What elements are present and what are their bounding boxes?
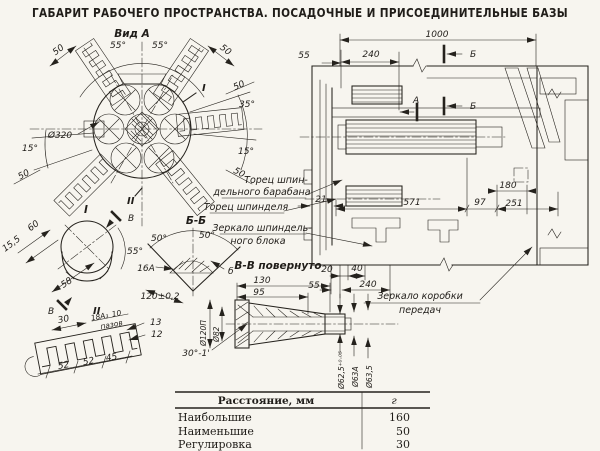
callout-spindle-block-face: Зеркало шпиндель- ного блока bbox=[212, 223, 372, 249]
section-vv-title: В-В повернуто bbox=[234, 260, 321, 272]
angle-15-right: 15° bbox=[238, 147, 254, 157]
dimension-table: Расстояние, мм г Наибольшие 160 Наименьш… bbox=[175, 392, 430, 451]
callout-gearbox-face: Зеркало коробки передач bbox=[364, 245, 534, 316]
section-v-top: В bbox=[128, 214, 134, 224]
table-row: Наименьшие 50 bbox=[178, 425, 410, 438]
fit-16a: 16А bbox=[137, 264, 155, 274]
angle-35: 35° bbox=[239, 100, 255, 110]
dim-52b: 52 bbox=[82, 356, 95, 368]
detail-mark-I: I bbox=[202, 83, 206, 94]
label-spindle-drum-face-1: Торец шпин- bbox=[244, 175, 308, 186]
dim-dia-62-5: Ø62,5⁺⁰·⁰⁵ bbox=[337, 351, 346, 390]
dim-97: 97 bbox=[474, 198, 486, 208]
dim-dia-120p: Ø120П bbox=[199, 320, 208, 347]
label-spindle-block-2: ного блока bbox=[230, 236, 285, 247]
label-spindle-block-1: Зеркало шпиндель- bbox=[212, 223, 312, 234]
table-row-value: 30 bbox=[396, 438, 410, 451]
table-row-label: Наименьшие bbox=[178, 425, 254, 438]
machine-outline bbox=[304, 59, 588, 271]
dim-30: 30 bbox=[57, 314, 70, 326]
page-title: ГАБАРИТ РАБОЧЕГО ПРОСТРАНСТВА. ПОСАДОЧНЫ… bbox=[32, 6, 568, 20]
angle-55-left: 55° bbox=[110, 41, 126, 51]
detail-mark-II: II bbox=[127, 196, 135, 207]
angle-55-detail: 55° bbox=[127, 247, 143, 257]
dim-45: 45 bbox=[105, 352, 118, 364]
dim-95: 95 bbox=[253, 288, 265, 298]
section-a: А bbox=[412, 96, 419, 106]
dim-dia-320: Ø320 bbox=[47, 130, 73, 141]
dim-dia-82: Ø82 bbox=[212, 326, 221, 343]
dim-60: 60 bbox=[26, 219, 41, 234]
table-header-value: г bbox=[391, 395, 397, 407]
ref-b: б bbox=[228, 267, 234, 277]
dim-12: 12 bbox=[151, 330, 163, 340]
dim-240-top: 240 bbox=[362, 50, 379, 60]
angle-15-left: 15° bbox=[22, 144, 38, 154]
dim-50-bottom-left: 50 bbox=[17, 168, 32, 182]
dim-130: 130 bbox=[253, 276, 270, 286]
dim-55-bottom: 55 bbox=[308, 281, 320, 291]
dim-571: 571 bbox=[403, 198, 420, 208]
section-b-mid: Б bbox=[470, 102, 476, 112]
dim-50-top-left: 50 bbox=[51, 43, 66, 58]
dim-13: 13 bbox=[150, 318, 162, 328]
label-spindle-drum-face-2: дельного барабана bbox=[212, 187, 310, 198]
angle-55-right: 55° bbox=[152, 41, 168, 51]
label-gearbox-1: Зеркало коробки bbox=[377, 291, 463, 302]
table-row: Наибольшие 160 bbox=[178, 411, 410, 424]
table-row-value: 160 bbox=[389, 411, 410, 424]
detail-i: I 60 15,5 58 55° В В II bbox=[1, 204, 143, 317]
dim-52a: 52 bbox=[57, 360, 70, 372]
view-a-label: Вид А bbox=[114, 28, 150, 40]
technical-drawing-canvas: ГАБАРИТ РАБОЧЕГО ПРОСТРАНСТВА. ПОСАДОЧНЫ… bbox=[0, 0, 600, 451]
main-view: 1000 55 240 Б Б А 571 97 251 180 bbox=[204, 30, 588, 316]
table-row-value: 50 bbox=[396, 425, 410, 438]
tool-slide bbox=[176, 108, 244, 137]
dim-50-right: 50 bbox=[232, 79, 247, 93]
dim-dia-63a: Ø63А bbox=[351, 366, 360, 388]
label-gearbox-2: передач bbox=[399, 305, 441, 316]
table-row-label: Наибольшие bbox=[178, 411, 252, 424]
section-bb-title: Б-Б bbox=[186, 215, 206, 227]
dim-dia-63-5: Ø63,5 bbox=[365, 365, 374, 389]
dim-251: 251 bbox=[505, 199, 522, 209]
detail-ii: 30 18А₃ 10 пазов 13 12 52 52 45 bbox=[21, 308, 163, 378]
dim-40: 40 bbox=[351, 264, 363, 274]
section-v-bottom: В bbox=[48, 307, 54, 317]
dim-120: 120±0,2 bbox=[140, 292, 179, 302]
table-row: Регулировка 30 bbox=[178, 438, 410, 451]
drawing-page: ГАБАРИТ РАБОЧЕГО ПРОСТРАНСТВА. ПОСАДОЧНЫ… bbox=[0, 0, 600, 451]
dim-240-bottom: 240 bbox=[359, 280, 376, 290]
dim-55-top: 55 bbox=[298, 51, 310, 61]
detail-i-title: I bbox=[84, 204, 88, 216]
angle-30-1: 30°-1' bbox=[182, 349, 209, 359]
dim-20: 20 bbox=[321, 265, 333, 275]
dim-180: 180 bbox=[499, 181, 516, 191]
dim-1000: 1000 bbox=[426, 30, 449, 40]
dim-50-top-right: 50 bbox=[218, 43, 233, 58]
label-spindle-face: Торец шпинделя bbox=[204, 202, 289, 213]
angle-50-left: 50° bbox=[151, 234, 167, 244]
table-header-distance: Расстояние, мм bbox=[218, 395, 314, 407]
dim-15-5: 15,5 bbox=[1, 234, 23, 254]
table-row-label: Регулировка bbox=[178, 438, 252, 451]
hatched-lump bbox=[170, 258, 213, 273]
section-b-top: Б bbox=[470, 50, 476, 60]
